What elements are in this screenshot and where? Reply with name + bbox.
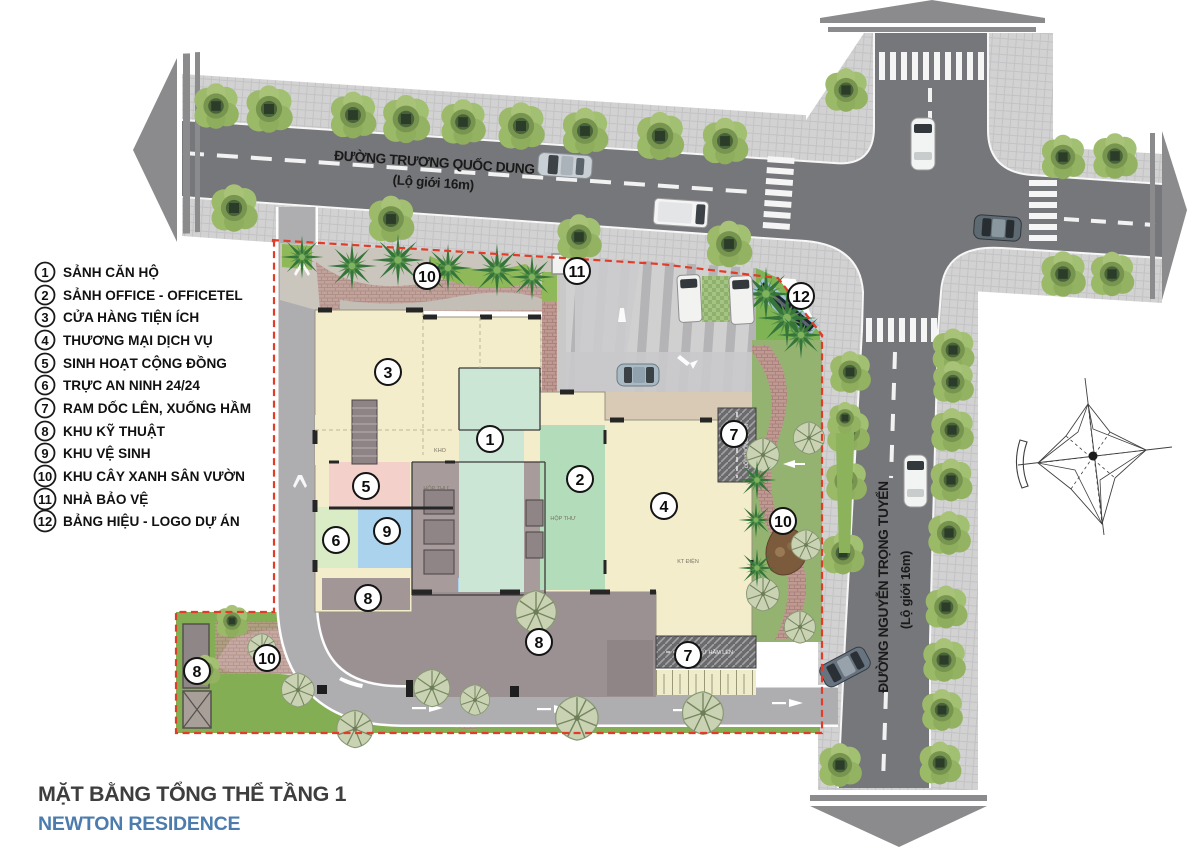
svg-text:RAM DỐC LÊN, XUỐNG HẦM: RAM DỐC LÊN, XUỐNG HẦM <box>63 401 251 416</box>
svg-text:5: 5 <box>362 479 371 496</box>
svg-text:KT ĐIỆN: KT ĐIỆN <box>677 557 699 565</box>
svg-text:4: 4 <box>660 499 669 516</box>
svg-text:8: 8 <box>535 635 544 652</box>
svg-text:9: 9 <box>383 524 392 541</box>
svg-text:12: 12 <box>792 289 810 306</box>
svg-text:KHU CÂY XANH SÂN VƯỜN: KHU CÂY XANH SÂN VƯỜN <box>63 469 245 484</box>
svg-text:(Lộ giới 16m): (Lộ giới 16m) <box>898 551 913 629</box>
svg-text:7: 7 <box>41 401 48 416</box>
svg-text:TỪ HẦM LÊN: TỪ HẦM LÊN <box>699 648 733 656</box>
svg-text:MẶT BẰNG TỔNG THỂ TẦNG 1: MẶT BẰNG TỔNG THỂ TẦNG 1 <box>38 781 347 806</box>
svg-text:2: 2 <box>41 288 48 303</box>
svg-text:THƯƠNG MẠI DỊCH VỤ: THƯƠNG MẠI DỊCH VỤ <box>63 333 213 348</box>
svg-text:2: 2 <box>576 472 585 489</box>
svg-text:6: 6 <box>332 533 341 550</box>
svg-text:5: 5 <box>41 356 48 371</box>
svg-text:12: 12 <box>38 514 52 529</box>
svg-text:10: 10 <box>38 469 52 484</box>
svg-text:NEWTON RESIDENCE: NEWTON RESIDENCE <box>38 813 240 835</box>
svg-text:6: 6 <box>41 378 48 393</box>
svg-text:8: 8 <box>41 424 48 439</box>
svg-text:HỘP THƯ: HỘP THƯ <box>423 485 449 492</box>
svg-text:CỬA HÀNG TIỆN ÍCH: CỬA HÀNG TIỆN ÍCH <box>63 310 199 325</box>
svg-text:11: 11 <box>38 492 52 507</box>
svg-text:TRỰC AN NINH 24/24: TRỰC AN NINH 24/24 <box>63 378 200 393</box>
svg-text:ĐƯỜNG NGUYỄN TRỌNG TUYỂN: ĐƯỜNG NGUYỄN TRỌNG TUYỂN <box>874 481 891 693</box>
svg-text:8: 8 <box>364 591 373 608</box>
svg-text:10: 10 <box>774 514 792 531</box>
svg-text:1: 1 <box>486 432 495 449</box>
svg-text:1: 1 <box>41 265 48 280</box>
svg-text:NHÀ BẢO VỆ: NHÀ BẢO VỆ <box>63 492 148 507</box>
svg-text:4: 4 <box>41 333 49 348</box>
svg-text:SẢNH OFFICE - OFFICETEL: SẢNH OFFICE - OFFICETEL <box>63 288 243 303</box>
svg-text:SINH HOẠT CỘNG ĐỒNG: SINH HOẠT CỘNG ĐỒNG <box>63 356 227 371</box>
svg-text:3: 3 <box>41 310 48 325</box>
svg-text:10: 10 <box>418 269 436 286</box>
svg-text:KHU VỆ SINH: KHU VỆ SINH <box>63 446 151 461</box>
svg-text:BẢNG HIỆU - LOGO DỰ ÁN: BẢNG HIỆU - LOGO DỰ ÁN <box>63 514 240 529</box>
svg-text:3: 3 <box>384 365 393 382</box>
svg-text:KHU KỸ THUẬT: KHU KỸ THUẬT <box>63 424 166 439</box>
svg-text:SẢNH CĂN HỘ: SẢNH CĂN HỘ <box>63 265 159 280</box>
svg-text:9: 9 <box>41 446 48 461</box>
svg-text:KHO: KHO <box>434 448 447 454</box>
svg-text:11: 11 <box>569 264 586 281</box>
svg-text:7: 7 <box>730 427 739 444</box>
svg-text:7: 7 <box>684 648 693 665</box>
svg-text:HỘP THƯ: HỘP THƯ <box>550 515 576 522</box>
svg-text:10: 10 <box>258 651 276 668</box>
svg-text:8: 8 <box>193 664 202 681</box>
